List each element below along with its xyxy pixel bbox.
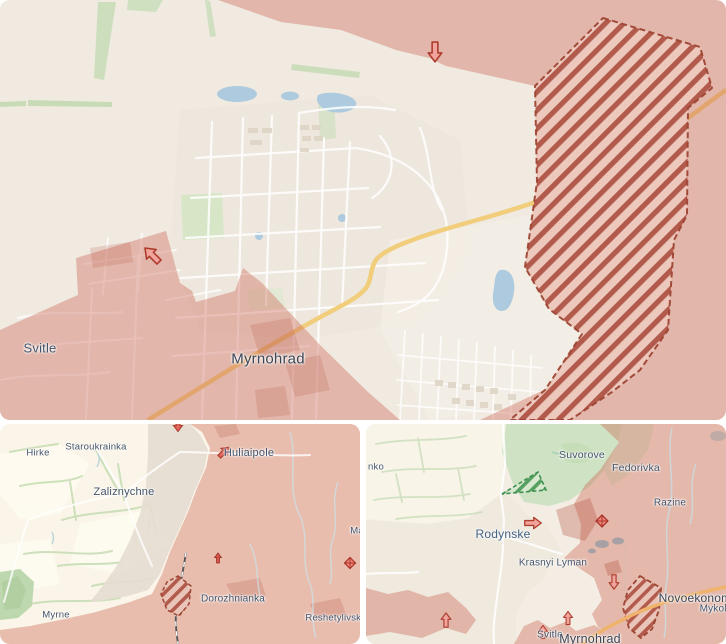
clash-diamond-icon [595, 514, 609, 528]
advance-arrow-left-icon [523, 516, 543, 531]
map-canvas [0, 0, 726, 420]
advance-arrow-up-icon [537, 624, 549, 640]
map-canvas [0, 424, 360, 644]
advance-arrow-down-icon [608, 574, 621, 591]
advance-arrow-down-icon [426, 40, 444, 64]
map-tile-rodynske[interactable]: nko Suvorove Fedorivka Razine Rodynske K… [366, 424, 726, 644]
advance-arrow-up-icon [440, 612, 453, 629]
advance-arrow-cut-icon [172, 424, 184, 432]
advance-arrow-up-small-icon [214, 552, 223, 564]
map-canvas [366, 424, 726, 644]
advance-arrow-up-icon [562, 610, 574, 626]
map-tile-myrnohrad[interactable]: Svitle Myrnohrad [0, 0, 726, 420]
clash-diamond-icon [344, 557, 357, 570]
map-tile-zaliznychne[interactable]: Hirke Staroukrainka Zaliznychne Huliaipo… [0, 424, 360, 644]
